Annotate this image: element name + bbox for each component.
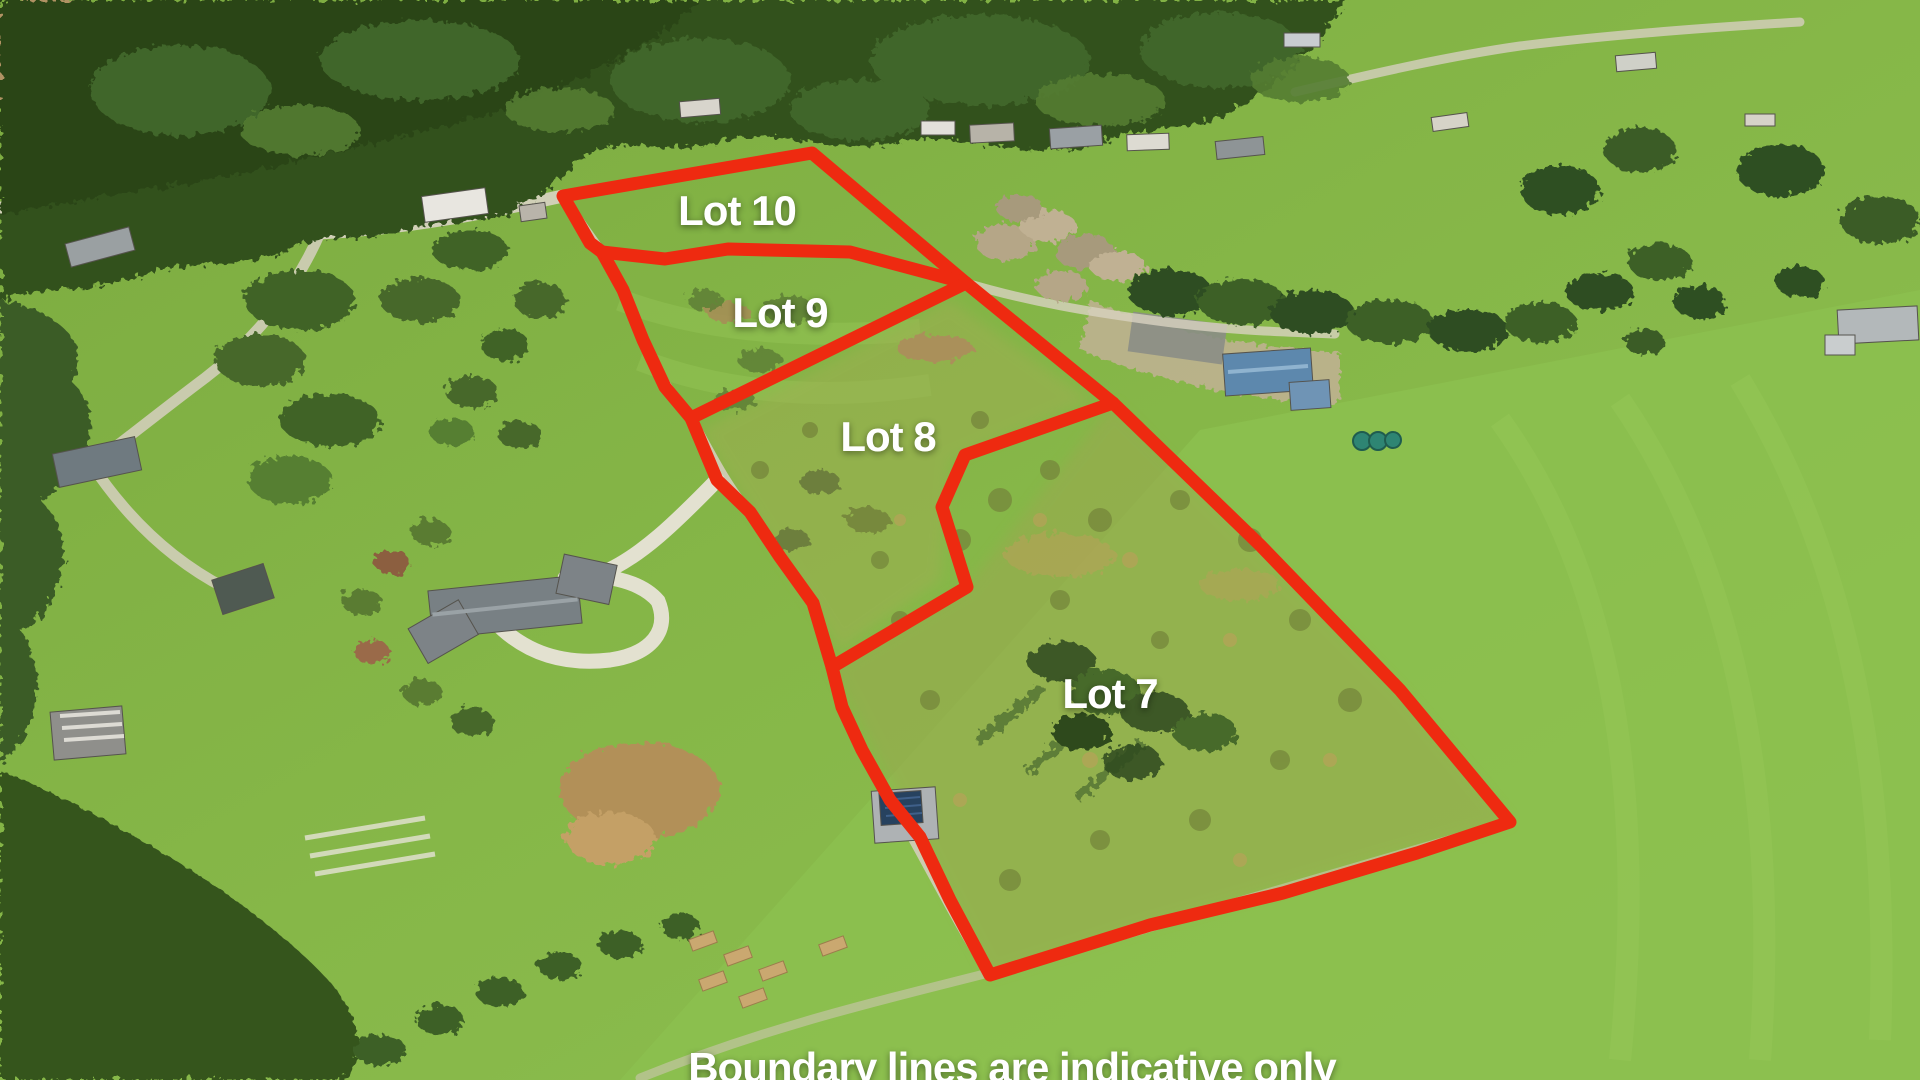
disclaimer-text: Boundary lines are indicative only	[688, 1044, 1336, 1080]
lot-7-label: Lot 7	[1062, 670, 1157, 718]
lot-9-label: Lot 9	[732, 289, 827, 337]
aerial-photo: Lot 10 Lot 9 Lot 8 Lot 7 Boundary lines …	[0, 0, 1920, 1080]
lot-10-label: Lot 10	[678, 187, 796, 235]
lot-8-label: Lot 8	[840, 413, 935, 461]
water-tanks	[1353, 432, 1401, 450]
aerial-scene	[0, 0, 1920, 1080]
